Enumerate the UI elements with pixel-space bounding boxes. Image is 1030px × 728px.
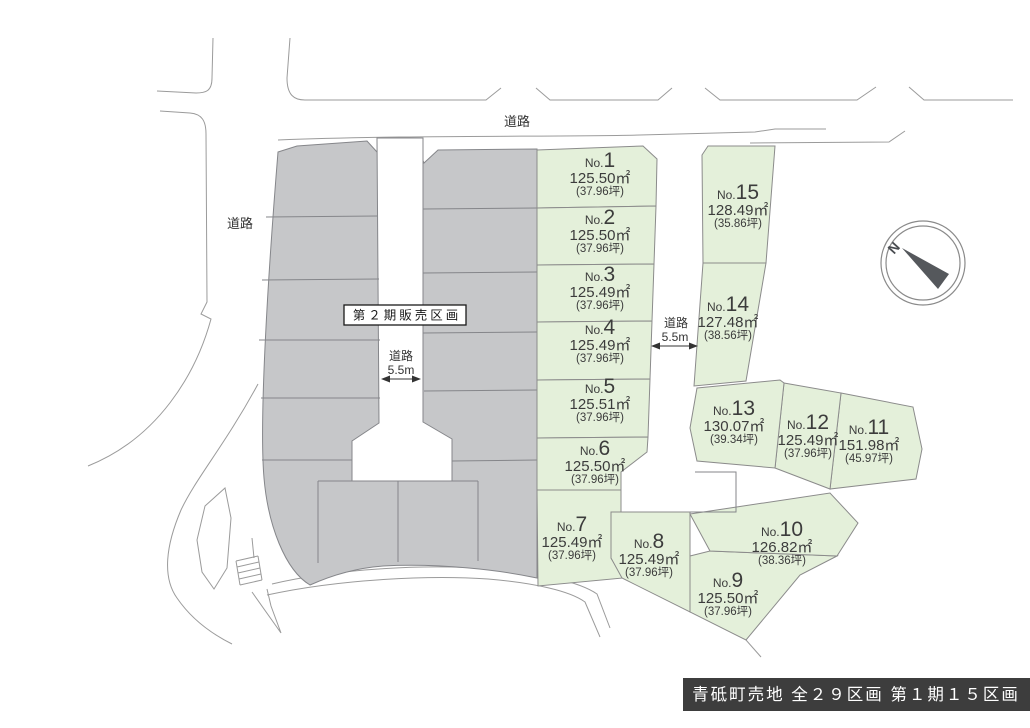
svg-text:130.07㎡: 130.07㎡: [704, 418, 765, 435]
road-line: [536, 88, 672, 100]
svg-text:151.98㎡: 151.98㎡: [839, 437, 900, 454]
road-line: [252, 589, 281, 633]
traffic-island: [197, 488, 231, 589]
road2-dimension: 道路 5.5m: [651, 315, 698, 350]
svg-text:(37.96坪): (37.96坪): [548, 549, 596, 562]
svg-text:(35.86坪): (35.86坪): [714, 217, 762, 230]
svg-text:(45.97坪): (45.97坪): [845, 452, 893, 465]
site-plan: No.1 125.50㎡ (37.96坪) No.2 125.50㎡ (37.9…: [0, 0, 1030, 728]
compass-needle: [902, 248, 949, 289]
road-line: [88, 111, 211, 466]
svg-text:(37.96坪): (37.96坪): [576, 299, 624, 312]
road-line: [157, 38, 213, 93]
svg-text:125.49㎡: 125.49㎡: [570, 284, 631, 301]
svg-text:125.51㎡: 125.51㎡: [570, 396, 631, 413]
svg-text:5.5m: 5.5m: [388, 363, 415, 377]
svg-text:(37.96坪): (37.96坪): [576, 411, 624, 424]
svg-text:125.50㎡: 125.50㎡: [570, 170, 631, 187]
road-line: [746, 640, 761, 657]
phase2-label-text: 第２期販売区画: [353, 308, 462, 323]
svg-text:(37.96坪): (37.96坪): [576, 352, 624, 365]
road-line: [278, 129, 826, 140]
svg-text:道路: 道路: [389, 348, 413, 363]
road-line: [750, 131, 905, 143]
title-bar: 青砥町売地 全２９区画 第１期１５区画: [683, 678, 1030, 711]
svg-text:128.49㎡: 128.49㎡: [708, 202, 769, 219]
svg-text:(39.34坪): (39.34坪): [710, 433, 758, 446]
svg-text:(37.96坪): (37.96坪): [704, 605, 752, 618]
svg-text:(38.56坪): (38.56坪): [704, 329, 752, 342]
svg-text:(37.96坪): (37.96坪): [576, 242, 624, 255]
road-line: [705, 87, 876, 100]
svg-text:(37.96坪): (37.96坪): [576, 185, 624, 198]
compass: N: [881, 221, 965, 305]
svg-text:125.49㎡: 125.49㎡: [542, 534, 603, 551]
road-label-top: 道路: [504, 114, 530, 129]
road-line: [909, 87, 1013, 100]
svg-text:125.50㎡: 125.50㎡: [570, 227, 631, 244]
svg-text:(37.96坪): (37.96坪): [784, 447, 832, 460]
road-line: [267, 578, 600, 637]
svg-text:127.48㎡: 127.48㎡: [698, 314, 759, 331]
svg-text:(37.96坪): (37.96坪): [571, 473, 619, 486]
road-label-left: 道路: [227, 216, 253, 231]
svg-text:5.5m: 5.5m: [662, 330, 689, 344]
svg-text:道路: 道路: [664, 315, 688, 330]
svg-text:125.50㎡: 125.50㎡: [565, 458, 626, 475]
svg-text:125.50㎡: 125.50㎡: [698, 590, 759, 607]
svg-text:125.49㎡: 125.49㎡: [778, 432, 839, 449]
svg-text:125.49㎡: 125.49㎡: [619, 551, 680, 568]
road-line: [252, 538, 254, 558]
title-bar-text: 青砥町売地 全２９区画 第１期１５区画: [692, 685, 1020, 704]
svg-text:(38.36坪): (38.36坪): [758, 554, 806, 567]
svg-text:125.49㎡: 125.49㎡: [570, 337, 631, 354]
road-line: [287, 38, 501, 100]
phase2-label: 第２期販売区画: [344, 305, 466, 325]
svg-text:126.82㎡: 126.82㎡: [752, 539, 813, 556]
stairs: [236, 556, 262, 585]
svg-text:(37.96坪): (37.96坪): [625, 566, 673, 579]
turnaround-outline: [690, 472, 736, 512]
